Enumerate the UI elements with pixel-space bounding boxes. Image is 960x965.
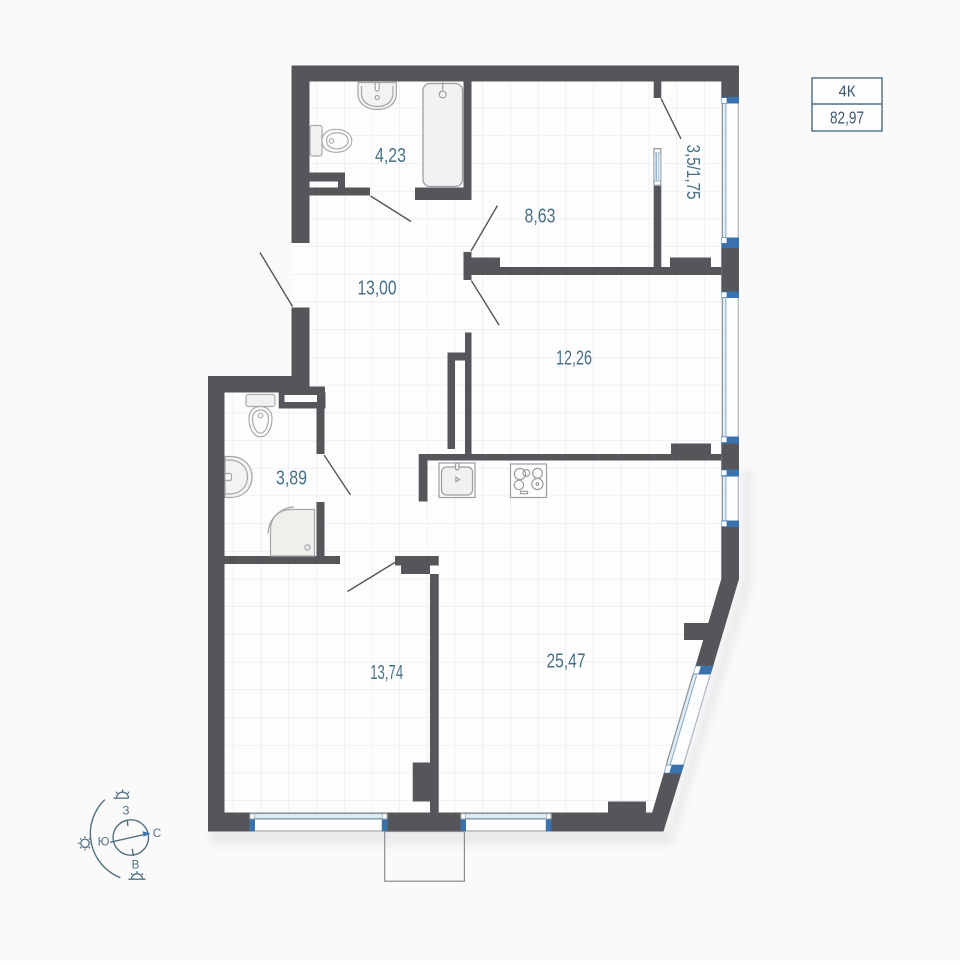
svg-text:В: В (132, 860, 140, 872)
svg-text:8,63: 8,63 (525, 205, 556, 228)
svg-text:12,26: 12,26 (556, 347, 592, 370)
svg-text:4,23: 4,23 (375, 144, 406, 167)
svg-text:С: С (153, 828, 161, 840)
svg-text:13,00: 13,00 (358, 277, 397, 300)
svg-text:З: З (123, 806, 130, 818)
svg-text:4К: 4К (839, 84, 857, 101)
svg-text:25,47: 25,47 (547, 650, 586, 673)
svg-text:3,89: 3,89 (276, 467, 307, 490)
svg-text:13,74: 13,74 (370, 661, 403, 684)
svg-text:82,97: 82,97 (830, 108, 864, 128)
svg-text:3,5/1,75: 3,5/1,75 (683, 145, 703, 200)
svg-text:Ю: Ю (98, 837, 110, 849)
